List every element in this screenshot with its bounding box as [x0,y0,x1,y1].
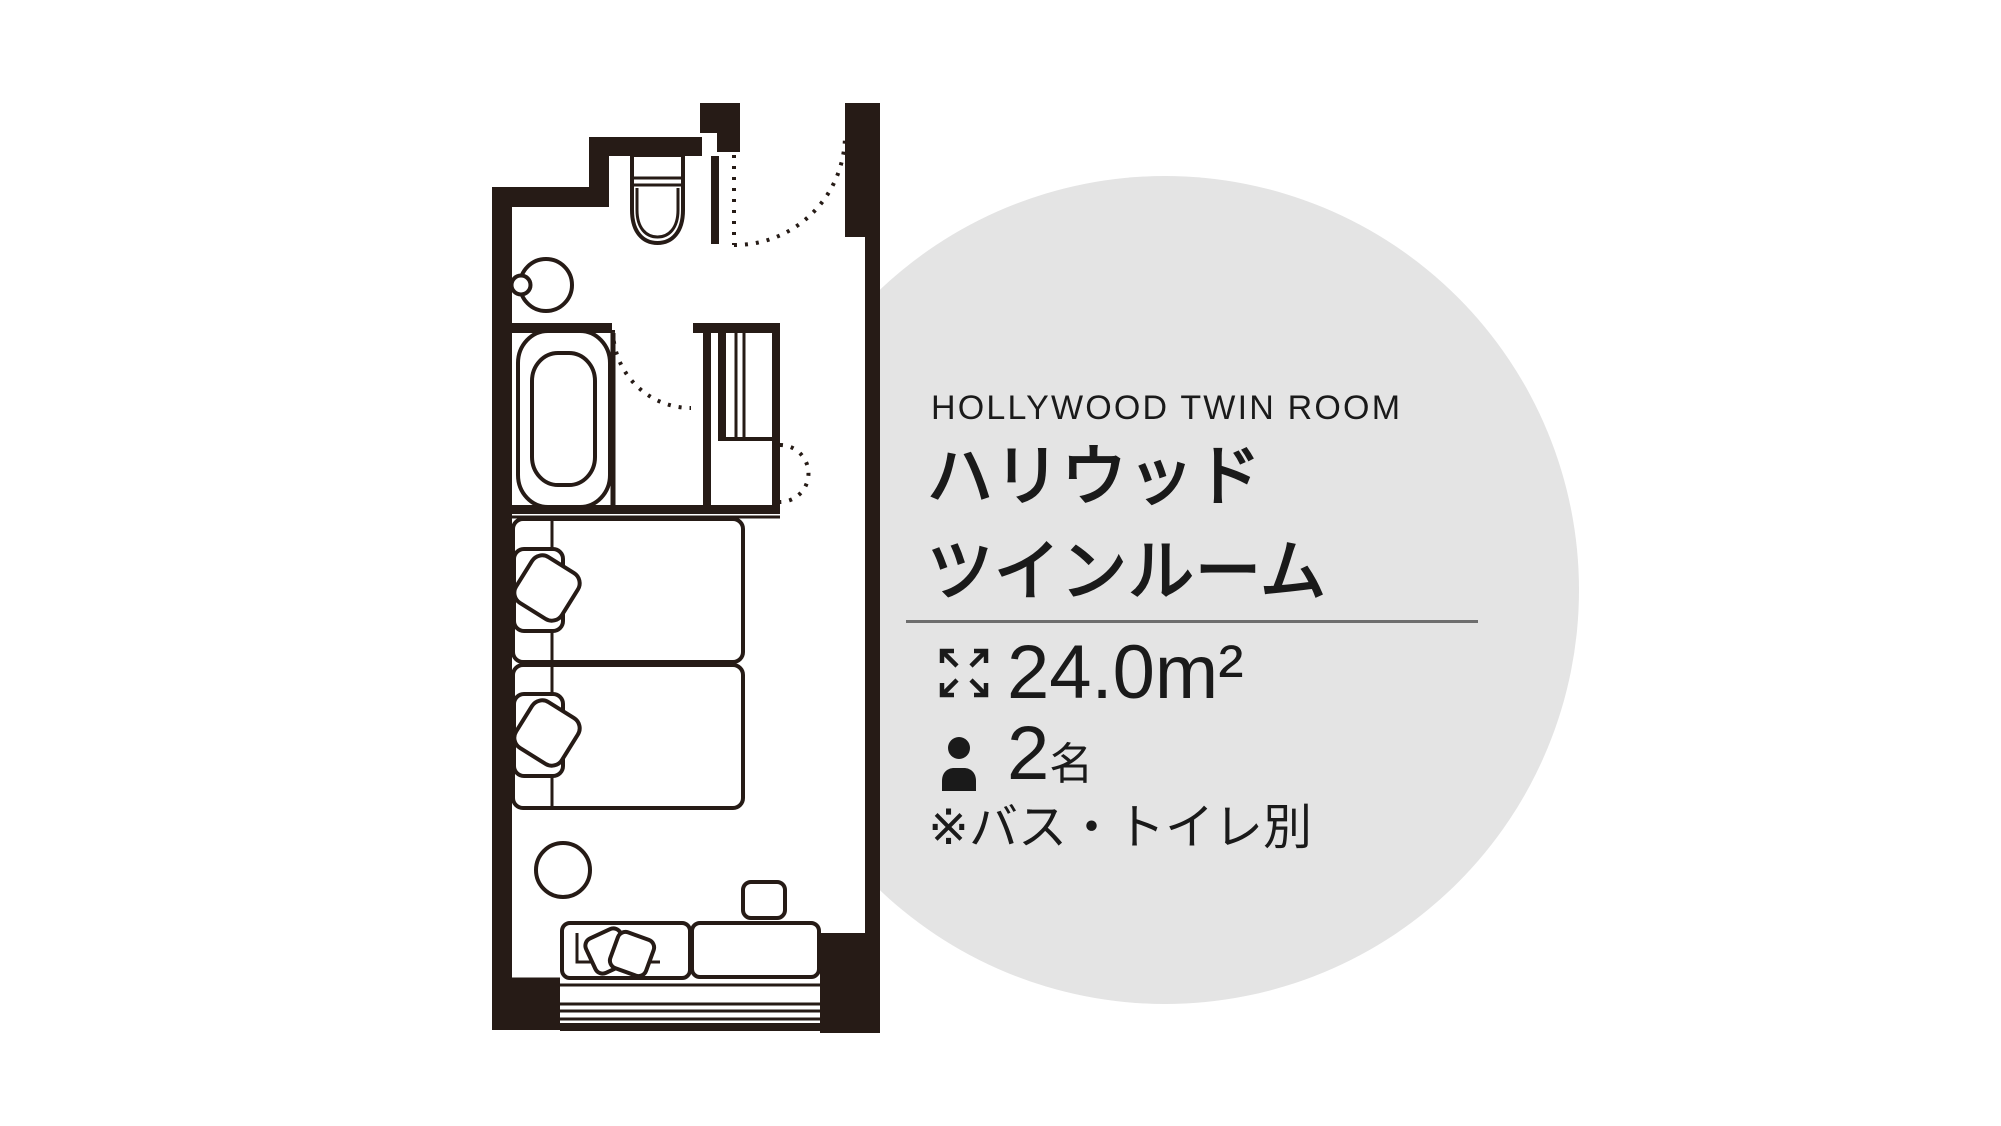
capacity-unit: 名 [1049,740,1093,789]
area-unit: m² [1155,630,1244,715]
person-icon [940,737,978,791]
bathtub [518,331,610,507]
room-title-japanese-line2: ツインルーム [927,524,1327,619]
divider-line [906,620,1478,623]
room-title-japanese: ハリウッド ツインルーム [927,429,1327,619]
room-area-value: 24.0m² [1007,635,1244,711]
room-title-english: HOLLYWOOD TWIN ROOM [931,389,1402,428]
room-title-japanese-line1: ハリウッド [927,429,1327,524]
round-table [536,843,590,897]
sofa-ottoman [692,923,819,977]
side-table [743,882,785,918]
area-number: 24.0 [1007,630,1155,715]
hotel-room-info-graphic: HOLLYWOOD TWIN ROOM ハリウッド ツインルーム 24.0m² … [0,0,2001,1126]
capacity-number: 2 [1007,711,1049,796]
bath-toilet-note: ※バス・トイレ別 [928,804,1312,853]
expand-arrows-icon [938,647,990,699]
room-capacity-value: 2名 [1007,716,1093,803]
sofa [562,923,819,978]
toilet [632,155,683,243]
